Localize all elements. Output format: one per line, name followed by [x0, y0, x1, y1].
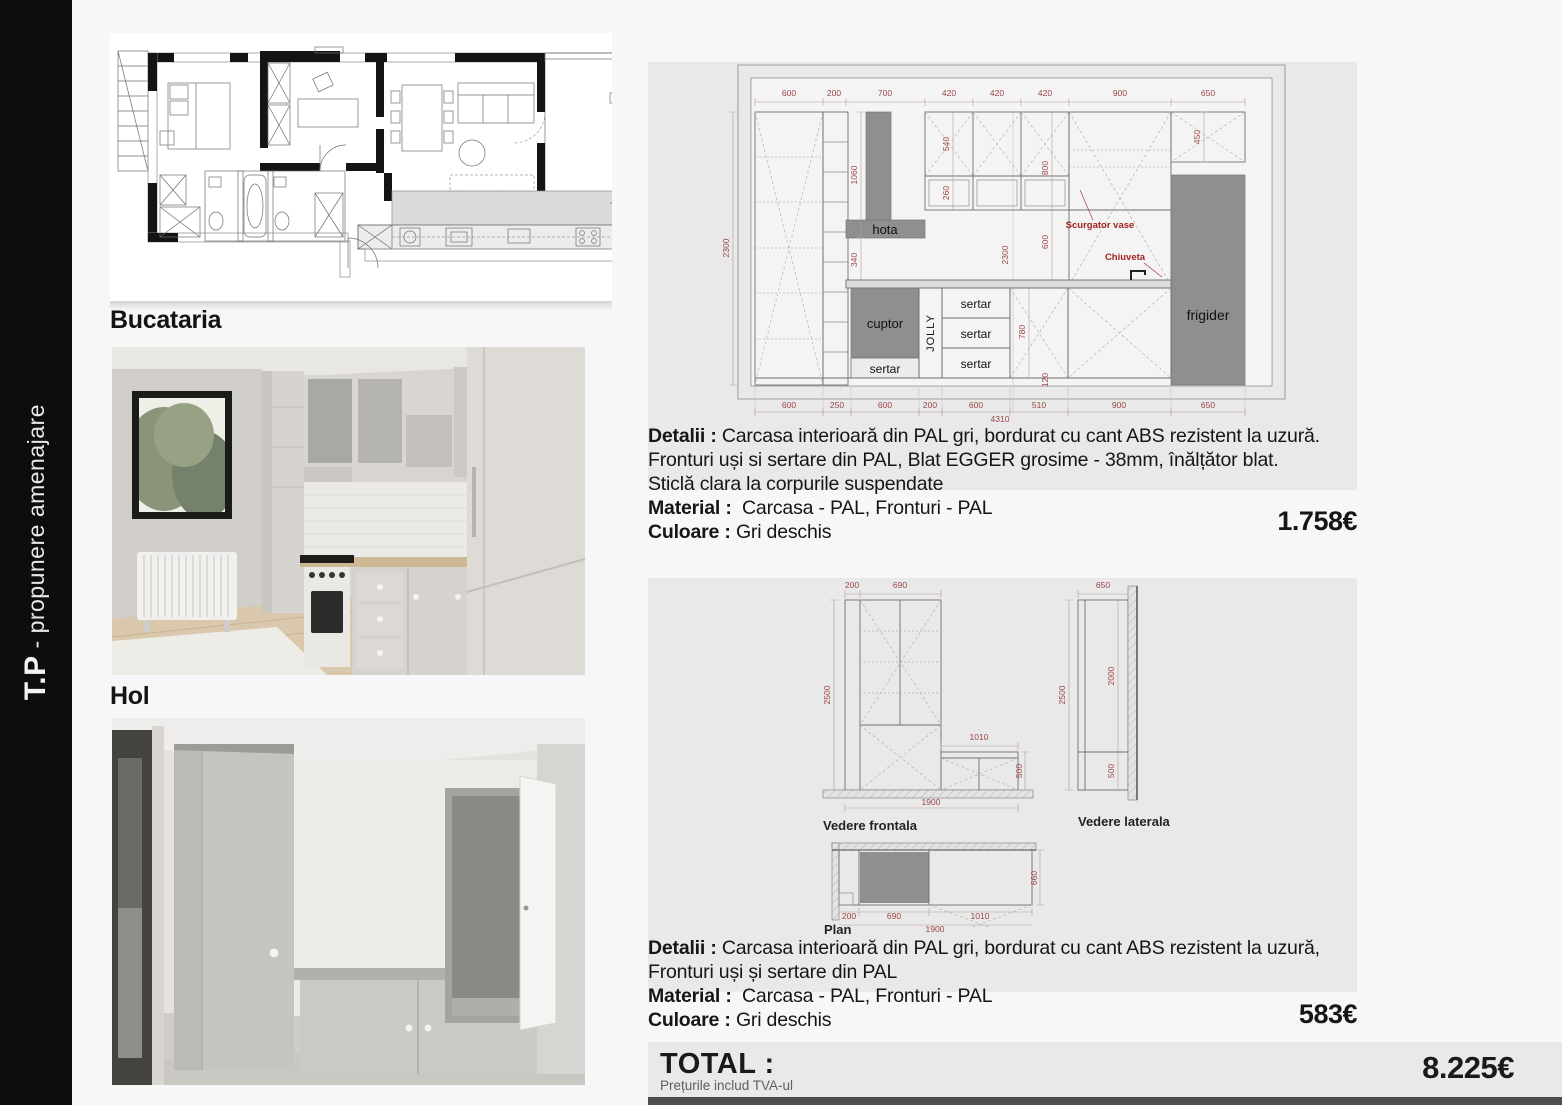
hall-plan-view: 200 690 1010 1900 660 Plan	[824, 843, 1044, 935]
dim-text: 650	[1201, 400, 1215, 410]
dim-text: 600	[782, 88, 796, 98]
hall-drawing-svg: 200 690 2500 1010 500 1900 Vedere fronta…	[648, 578, 1357, 935]
hall-front-view: 200 690 2500 1010 500 1900 Vedere fronta…	[822, 580, 1033, 833]
kitchen-photo	[112, 347, 585, 675]
dim-text: 1900	[922, 797, 941, 807]
dim-text: 200	[827, 88, 841, 98]
dim-text: 600	[969, 400, 983, 410]
detalii-label: Detalii :	[648, 937, 717, 959]
brand-label: T.P	[19, 656, 52, 701]
floorplan-furniture	[160, 72, 534, 191]
dim-text: 340	[849, 253, 859, 267]
dim-text: 500	[1106, 764, 1116, 778]
dim-text: 780	[1017, 325, 1027, 339]
dim-text: 700	[878, 88, 892, 98]
dim-text: 1010	[971, 911, 990, 921]
hall-photo	[112, 718, 585, 1085]
detalii-line-3: Sticlă clara la corpurile suspendate	[648, 472, 1357, 496]
kitchen-technical-drawing: 600 200 700 420 420 420 900 650 hota	[648, 62, 1357, 425]
dim-text: 420	[942, 88, 956, 98]
hall-heading: Hol	[110, 682, 149, 711]
sidebar-subtitle: - propunere amenajare	[23, 404, 49, 655]
dim-text: 420	[990, 88, 1004, 98]
dim-text: 600	[782, 400, 796, 410]
sertar-label: sertar	[961, 357, 992, 371]
hota-label: hota	[872, 222, 898, 237]
sidebar: T.P - propunere amenajare	[0, 0, 72, 1105]
hall-photo-svg	[112, 718, 585, 1085]
cuptor-label: cuptor	[867, 316, 904, 331]
detalii-line-1: Detalii : Carcasa interioară din PAL gri…	[648, 936, 1357, 960]
dim-text: 4310	[991, 414, 1010, 424]
floorplan-walls	[118, 47, 612, 277]
dim-text: 250	[830, 400, 844, 410]
dim-text: 200	[923, 400, 937, 410]
detalii-line-1: Detalii : Carcasa interioară din PAL gri…	[648, 424, 1357, 448]
bottom-bar	[648, 1097, 1562, 1105]
dim-text: 900	[1113, 88, 1127, 98]
dim-text: 2500	[822, 685, 832, 704]
scurgator-label: Scurgator vase	[1066, 220, 1135, 231]
dim-text: 2300	[1000, 245, 1010, 264]
dim-text: 200	[845, 580, 859, 590]
detalii-text: Carcasa interioară din PAL gri, bordurat…	[722, 937, 1320, 959]
dim-text: 450	[1192, 130, 1202, 144]
dim-text: 510	[1032, 400, 1046, 410]
dim-text: 690	[893, 580, 907, 590]
kitchen-drawing-svg: 600 200 700 420 420 420 900 650 hota	[648, 62, 1357, 425]
dim-text: 540	[941, 137, 951, 151]
dim-text: 260	[941, 186, 951, 200]
kitchen-photo-svg	[112, 347, 585, 675]
chiuveta-label: Chiuveta	[1105, 252, 1146, 263]
sidebar-title: T.P - propunere amenajare	[19, 404, 53, 700]
detalii-line-2: Fronturi uși și sertare din PAL	[648, 960, 1357, 984]
dim-text: 1010	[970, 732, 989, 742]
kitchen-price: 1.758€	[648, 506, 1357, 537]
dim-text: 650	[1201, 88, 1215, 98]
detalii-text: Carcasa interioară din PAL gri, bordurat…	[722, 425, 1320, 447]
detalii-label: Detalii :	[648, 425, 717, 447]
sertar-label: sertar	[870, 362, 901, 376]
dim-text: 660	[1029, 871, 1039, 885]
kitchen-heading: Bucataria	[110, 306, 221, 335]
plan-view-label: Plan	[824, 922, 852, 935]
dim-text: 650	[1096, 580, 1110, 590]
dim-text: 2000	[1106, 666, 1116, 685]
dim-text: 420	[1038, 88, 1052, 98]
dim-text: 120	[1040, 373, 1050, 387]
hall-technical-drawing: 200 690 2500 1010 500 1900 Vedere fronta…	[648, 578, 1357, 935]
dim-text: 200	[842, 911, 856, 921]
dim-text: 690	[887, 911, 901, 921]
floorplan-svg	[110, 33, 612, 301]
dim-text: 500	[1014, 764, 1024, 778]
dim-text: 800	[1040, 161, 1050, 175]
side-view-label: Vedere laterala	[1078, 814, 1171, 829]
detalii-line-2: Fronturi uși si sertare din PAL, Blat EG…	[648, 448, 1357, 472]
dim-text: 900	[1112, 400, 1126, 410]
dim-text: 600	[878, 400, 892, 410]
jolly-label: JOLLY	[925, 314, 937, 352]
sertar-label: sertar	[961, 327, 992, 341]
front-view-label: Vedere frontala	[823, 818, 918, 833]
dim-text: 2500	[1057, 685, 1067, 704]
dim-text: 1060	[849, 165, 859, 184]
hall-price: 583€	[648, 999, 1357, 1030]
frigider-label: frigider	[1187, 307, 1230, 323]
hall-side-view: 650 2500 2000 500 Vedere laterala	[1057, 580, 1171, 829]
dim-text: 1900	[926, 924, 945, 934]
total-price: 8.225€	[648, 1050, 1514, 1086]
sertar-label: sertar	[961, 297, 992, 311]
page: { "sidebar": { "brand": "T.P", "subtitle…	[0, 0, 1562, 1105]
dim-text: 600	[1040, 235, 1050, 249]
floorplan-image	[110, 33, 612, 301]
dim-text: 2300	[721, 238, 731, 257]
